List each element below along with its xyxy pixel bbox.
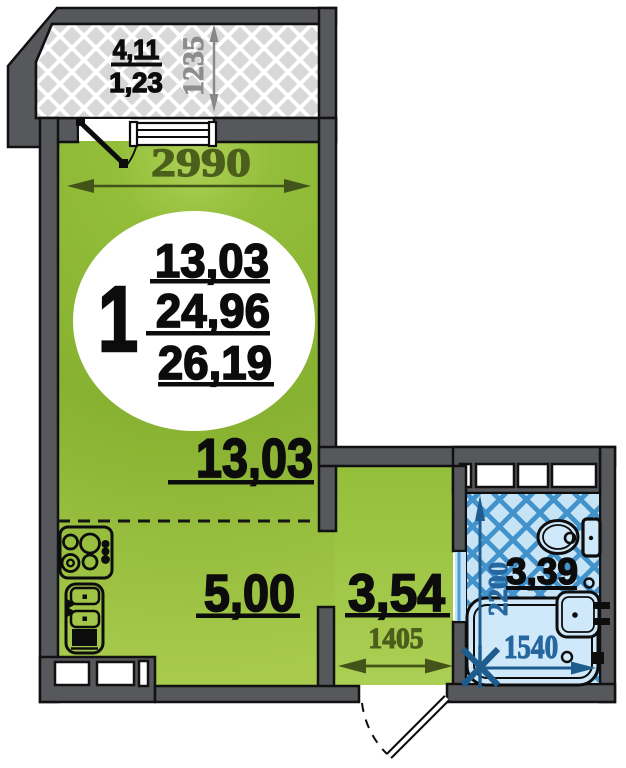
- svg-text:1540: 1540: [504, 628, 558, 666]
- svg-text:1: 1: [98, 267, 138, 371]
- svg-text:1235: 1235: [177, 36, 210, 96]
- svg-text:3,39: 3,39: [506, 551, 578, 592]
- svg-text:1405: 1405: [368, 622, 423, 655]
- svg-text:24,96: 24,96: [156, 284, 270, 337]
- svg-text:13,03: 13,03: [196, 427, 313, 488]
- svg-text:2990: 2990: [151, 141, 251, 185]
- svg-text:26,19: 26,19: [158, 336, 272, 389]
- svg-text:2200: 2200: [483, 562, 513, 616]
- svg-text:1,23: 1,23: [109, 67, 162, 98]
- svg-text:4,11: 4,11: [113, 34, 160, 66]
